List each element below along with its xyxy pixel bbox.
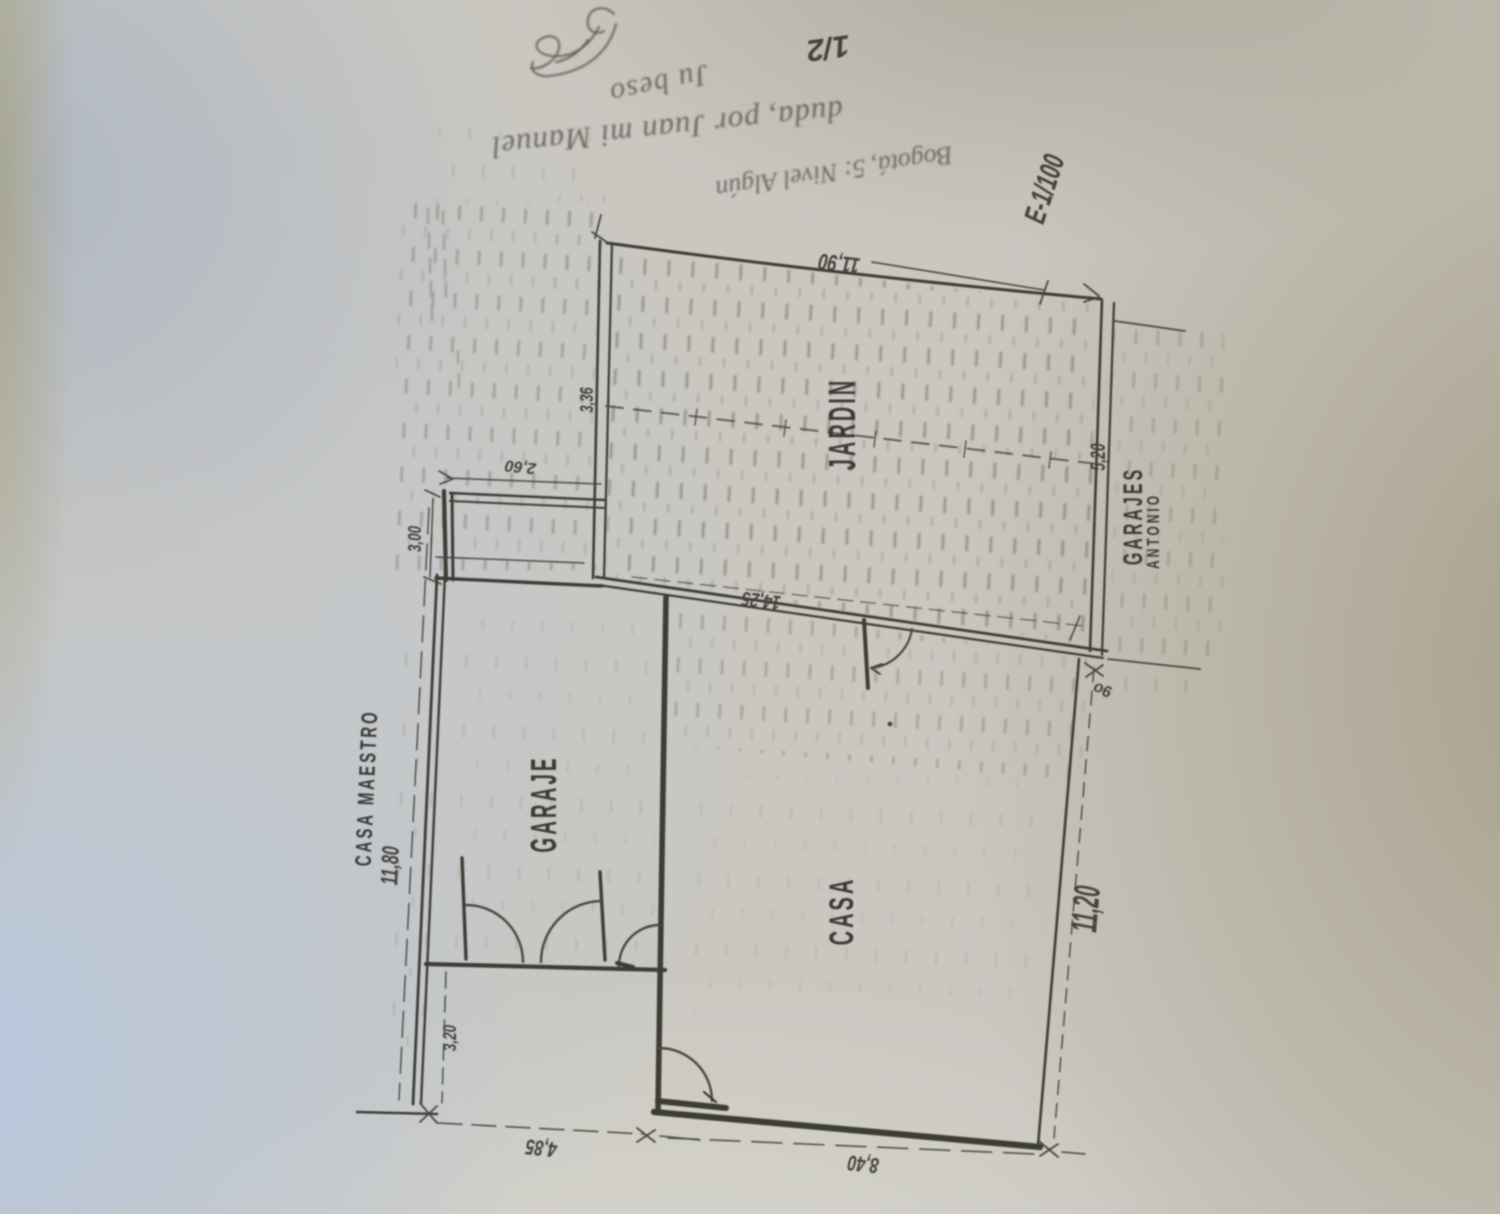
- svg-text:4,85: 4,85: [524, 1134, 559, 1161]
- svg-text:11,80: 11,80: [377, 845, 405, 885]
- svg-text:GARAJE: GARAJE: [525, 755, 565, 852]
- svg-text:Bogotá, 5: Nivel Algún: Bogotá, 5: Nivel Algún: [714, 140, 955, 204]
- svg-text:Ju beso: Ju beso: [606, 58, 712, 111]
- svg-text:14,25: 14,25: [740, 587, 782, 614]
- svg-text:duda, por Juan mi Manuel: duda, por Juan mi Manuel: [489, 94, 845, 166]
- svg-text:ANTONIO: ANTONIO: [1144, 493, 1164, 569]
- svg-text:5,20: 5,20: [1086, 443, 1110, 470]
- svg-text:3,36: 3,36: [578, 387, 598, 412]
- svg-text:CASA: CASA: [823, 877, 861, 946]
- svg-text:1/2: 1/2: [805, 28, 853, 69]
- svg-text:8,40: 8,40: [846, 1150, 880, 1177]
- svg-text:CASA MAESTRO: CASA MAESTRO: [352, 709, 384, 867]
- svg-text:3,00: 3,00: [405, 526, 426, 552]
- svg-text:E-1/100: E-1/100: [1019, 151, 1072, 228]
- svg-text:11,20: 11,20: [1063, 884, 1108, 934]
- svg-text:3,20: 3,20: [440, 1025, 461, 1051]
- svg-text:11,90: 11,90: [817, 248, 862, 278]
- svg-text:JARDIN: JARDIN: [822, 378, 863, 470]
- svg-text:2,60: 2,60: [504, 456, 538, 476]
